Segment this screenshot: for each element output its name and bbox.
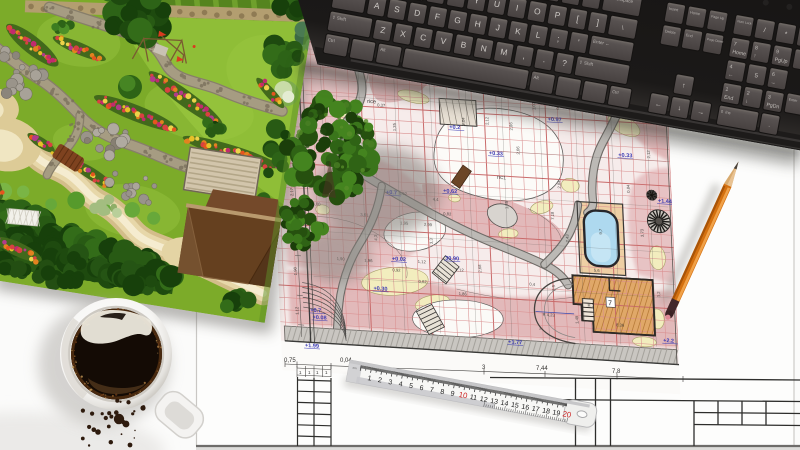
svg-text:2,84: 2,84: [556, 180, 561, 189]
svg-text:8,36: 8,36: [616, 322, 625, 328]
svg-text:12: 12: [479, 396, 488, 404]
svg-text:2,04: 2,04: [461, 117, 466, 126]
svg-text:0,84: 0,84: [626, 184, 631, 193]
svg-text:5,6: 5,6: [594, 268, 601, 273]
svg-text:7: 7: [608, 300, 612, 307]
svg-text:R 3: R 3: [587, 303, 594, 308]
svg-text:14: 14: [500, 400, 509, 408]
svg-text:rice: rice: [367, 99, 376, 106]
svg-text:1,35: 1,35: [392, 122, 397, 131]
svg-text:2,12: 2,12: [646, 150, 651, 159]
svg-text:3,2: 3,2: [656, 291, 661, 298]
svg-text:1,12: 1,12: [456, 267, 465, 273]
svg-text:0,4: 0,4: [529, 281, 536, 286]
svg-text:2,5: 2,5: [551, 284, 556, 291]
svg-text:R 4,23: R 4,23: [542, 312, 555, 318]
svg-text:3,73: 3,73: [639, 228, 644, 237]
svg-text:ПС1: ПС1: [497, 175, 507, 181]
svg-text:2,99: 2,99: [424, 222, 433, 228]
svg-text:1,90: 1,90: [293, 266, 298, 275]
svg-text:→: →: [770, 80, 776, 87]
svg-text:←: ←: [654, 101, 662, 109]
svg-text:3,3: 3,3: [428, 237, 433, 244]
svg-text:0,62: 0,62: [419, 279, 428, 285]
svg-text:13: 13: [490, 398, 499, 406]
svg-text:1,12: 1,12: [294, 306, 299, 315]
svg-text:2,86: 2,86: [508, 121, 513, 130]
svg-text:2,06: 2,06: [515, 146, 520, 155]
svg-text:18: 18: [542, 407, 551, 415]
svg-text:1,86: 1,86: [459, 291, 468, 297]
svg-text:0,92: 0,92: [392, 267, 401, 273]
svg-text:2,43: 2,43: [565, 233, 570, 242]
svg-text:0,82: 0,82: [443, 211, 452, 217]
svg-text:1,85: 1,85: [504, 200, 509, 209]
svg-text:7,8: 7,8: [612, 369, 621, 375]
svg-text:0,37: 0,37: [377, 102, 386, 108]
svg-text:0,75: 0,75: [284, 358, 296, 364]
svg-text:16: 16: [521, 404, 530, 412]
svg-text:←: ←: [728, 72, 734, 79]
svg-text:7,18: 7,18: [550, 211, 555, 220]
svg-text:19: 19: [552, 409, 561, 417]
svg-text:9,7: 9,7: [598, 228, 603, 235]
svg-text:11: 11: [469, 394, 478, 402]
svg-text:2,12: 2,12: [484, 116, 489, 125]
svg-text:15: 15: [510, 402, 519, 410]
svg-text:2,68: 2,68: [477, 264, 482, 273]
svg-text:7,44: 7,44: [536, 366, 548, 372]
svg-text:1,49: 1,49: [574, 315, 579, 324]
svg-text:→: →: [697, 109, 705, 117]
svg-text:17: 17: [531, 405, 540, 413]
svg-text:1,12: 1,12: [418, 259, 427, 265]
